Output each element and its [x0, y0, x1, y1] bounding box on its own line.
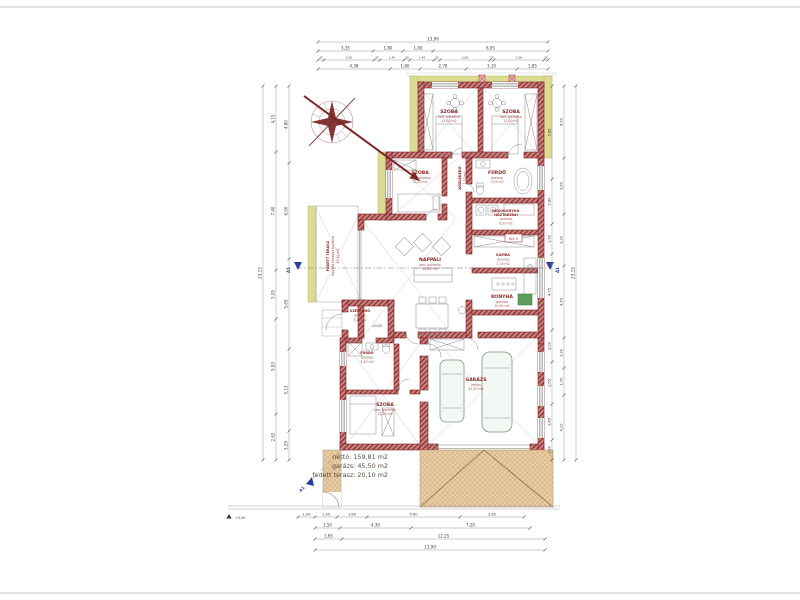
dimension-label: 4,15	[271, 114, 276, 123]
dimension-label: 2,65	[548, 379, 552, 387]
room-label-garazs-floor: beton	[471, 383, 480, 387]
dimension-label: 5,85	[548, 128, 552, 136]
dim-chain-top-total: 13,90	[317, 37, 550, 44]
room-label-kamra-area: 2,16 m2	[496, 262, 509, 266]
dimension-label: 35	[319, 56, 323, 60]
dimension-label: 2,80	[548, 197, 552, 206]
dimension-label: 1,45	[419, 56, 426, 60]
dimension-label: 4,50	[560, 117, 564, 126]
dim-chain-left-col2: 4,157,403,055,932,62	[271, 85, 278, 462]
entry-level-label: ±0,00	[372, 324, 382, 328]
dimension-label: 25	[490, 56, 494, 60]
dimension-label: 1,80	[414, 46, 423, 51]
room-label-szelfogo-area: 3,24 m2	[353, 318, 366, 322]
room-label-furdo1-floor: greslap	[491, 176, 503, 180]
room-label-garazs-area: 45,50 m2	[468, 387, 483, 391]
room-label-furdo2-floor: greslap	[361, 355, 373, 359]
dimension-label: 23,15	[571, 267, 576, 279]
dim-chain-bottom-row1: 1,001,351,805,603,85	[297, 513, 526, 519]
dim-chain-top-row2: 3,351,801,806,95	[317, 46, 550, 53]
room-label-szelfogo-name: SZÉLFOGÓ	[350, 308, 370, 313]
section-marker-a1-right: A1	[555, 267, 560, 273]
room-label-furdo2-name: FÜRDŐ	[360, 350, 373, 355]
room-label-szoba1-floor: lam. parketta	[438, 115, 459, 119]
dimension-label: 2,00	[548, 341, 552, 350]
floor-plan-drawing: +0,00	[0, 0, 800, 600]
dimension-label: 4,30	[371, 523, 380, 528]
dimension-label: 1,45	[389, 56, 396, 60]
dimension-label: 1,35	[322, 513, 330, 517]
dimension-label: 2,62	[271, 432, 276, 441]
section-marker-a1-left: A1	[286, 267, 291, 273]
dimension-label: 5,65	[284, 299, 289, 308]
dimension-label: 4,80	[284, 120, 289, 129]
dimension-label: 5,60	[409, 513, 418, 517]
photo-border	[0, 7, 800, 593]
dimension-label: 2,78	[439, 64, 448, 69]
room-label-szoba1-area: 12,00 m2	[441, 119, 456, 123]
ground-level-label: +0,00	[235, 516, 245, 520]
room-label-szoba3-area: 12,20 m2	[412, 180, 427, 184]
dimension-label: 35	[435, 56, 439, 60]
dimension-label: 3,29	[284, 441, 289, 450]
dimension-label: 3,45	[548, 418, 552, 426]
dimension-label: 5,93	[271, 362, 276, 371]
dimension-label: 3,00	[516, 56, 523, 60]
dimension-label: 35	[375, 56, 379, 60]
garage-cars	[440, 352, 512, 432]
driveway	[420, 445, 553, 507]
dimension-label: 6,00	[284, 206, 289, 215]
dim-chain-left-total: 23,15	[258, 85, 265, 462]
dimension-label: 13,90	[427, 37, 439, 42]
room-label-szelfogo-floor: greslap	[354, 313, 366, 317]
dim-chain-right-col2: 4,503,503,304,501,901,704,10	[560, 85, 566, 462]
dimension-label: 35	[544, 56, 548, 60]
room-label-mosokonyha-area: 6,20 m2	[499, 221, 512, 225]
dimension-label: 1,80	[384, 46, 393, 51]
room-label-szoba4-floor: lam. parketta	[374, 408, 395, 412]
dimension-label: 3,00	[346, 56, 353, 60]
dimension-label: 1,65	[324, 534, 333, 539]
dim-chain-top-row4: 4,381,802,783,101,85	[317, 64, 550, 71]
section-marker-a1-diag: A1	[298, 485, 306, 493]
compass-icon	[304, 96, 420, 181]
dimension-label: 7,20	[466, 523, 475, 528]
room-label-szoba3-floor: lam. parketta	[409, 176, 430, 180]
room-label-szoba2-floor: lam. parketta	[500, 115, 521, 119]
dimension-label: 1,90	[548, 234, 552, 243]
room-label-kozlekedo-name: KÖZLEKEDŐ	[457, 166, 462, 189]
dimension-label: 23,15	[258, 267, 263, 279]
room-label-terasz-name: FEDETT TERASZ	[326, 240, 330, 271]
dimension-label: 3,05	[271, 290, 276, 299]
dimension-label: 1,80	[348, 513, 357, 517]
dimension-label: 1,80	[401, 64, 410, 69]
room-label-szoba4-area: 13,20 m2	[377, 412, 392, 416]
dimension-label: 3,85	[488, 513, 496, 517]
dimension-label: 5,13	[284, 385, 289, 394]
dimension-label: 6,95	[486, 46, 495, 51]
meter-box-label: 621 V	[509, 237, 519, 241]
meter-box: 621 V	[505, 234, 522, 242]
dim-chain-right-total: 23,15	[571, 85, 578, 462]
dimension-label: 3,10	[487, 64, 496, 69]
dimension-label: 4,75	[548, 288, 552, 296]
dimension-label: 1,90	[560, 348, 564, 357]
room-label-konyha-floor: greslap	[496, 300, 508, 304]
room-label-nappali-floor: lam. parketta	[419, 263, 440, 267]
dimension-label: 13,90	[424, 545, 436, 550]
room-label-furdo1-area: 7,05 m2	[490, 180, 503, 184]
dimension-label: 7,40	[271, 206, 276, 215]
dimension-label: 3,35	[341, 46, 350, 51]
dimension-label: 12,25	[438, 534, 450, 539]
summary-terasz: fedett terasz: 20,10 m2	[312, 471, 388, 479]
dim-chain-bottom-total: 13,90	[314, 545, 547, 552]
floor-plan-page: +0,00	[0, 0, 800, 600]
room-label-konyha-area: 10,90 m2	[494, 304, 509, 308]
room-label-kamra-floor: greslap	[497, 257, 509, 261]
room-label-nappali-area: 32,60 m2	[422, 267, 437, 271]
dimension-label: 1,00	[302, 513, 311, 517]
dimension-label: 4,38	[350, 64, 359, 69]
dimension-label: 35	[405, 56, 409, 60]
summary-garazs: garázs: 45,50 m2	[332, 462, 388, 470]
summary-netto: nettó: 159,81 m2	[332, 453, 388, 461]
dimension-label: 4,10	[560, 423, 564, 432]
room-label-kozlekedo-area: 7,70 m2	[463, 171, 467, 184]
dimension-label: 1,85	[528, 64, 537, 69]
dim-chain-bottom-row2: 1,504,307,20	[314, 523, 532, 530]
dim-chain-top-row3: 353,00351,45351,45353,00253,0035	[317, 56, 550, 62]
room-label-kamra-name: KAMRA	[496, 253, 510, 257]
room-label-szoba2-area: 12,00 m2	[503, 119, 518, 123]
dimension-label: 3,50	[560, 181, 564, 190]
dim-chain-bottom-row3: 1,6512,25	[314, 534, 547, 541]
terrace-outline	[316, 206, 358, 336]
room-label-terasz-floor: fagyálló kerámia burkolat	[331, 235, 335, 276]
dimension-label: 1,80	[548, 445, 552, 454]
room-label-terasz-area: 20,10 m2	[336, 248, 340, 263]
dimension-label: 4,50	[560, 297, 564, 306]
room-label-furdo2-area: 5,40 m2	[360, 360, 373, 364]
dimension-label: 1,70	[560, 377, 564, 386]
dimension-label: 1,50	[323, 523, 332, 528]
dimension-label: 3,00	[462, 56, 469, 60]
dimension-label: 3,30	[560, 235, 564, 244]
